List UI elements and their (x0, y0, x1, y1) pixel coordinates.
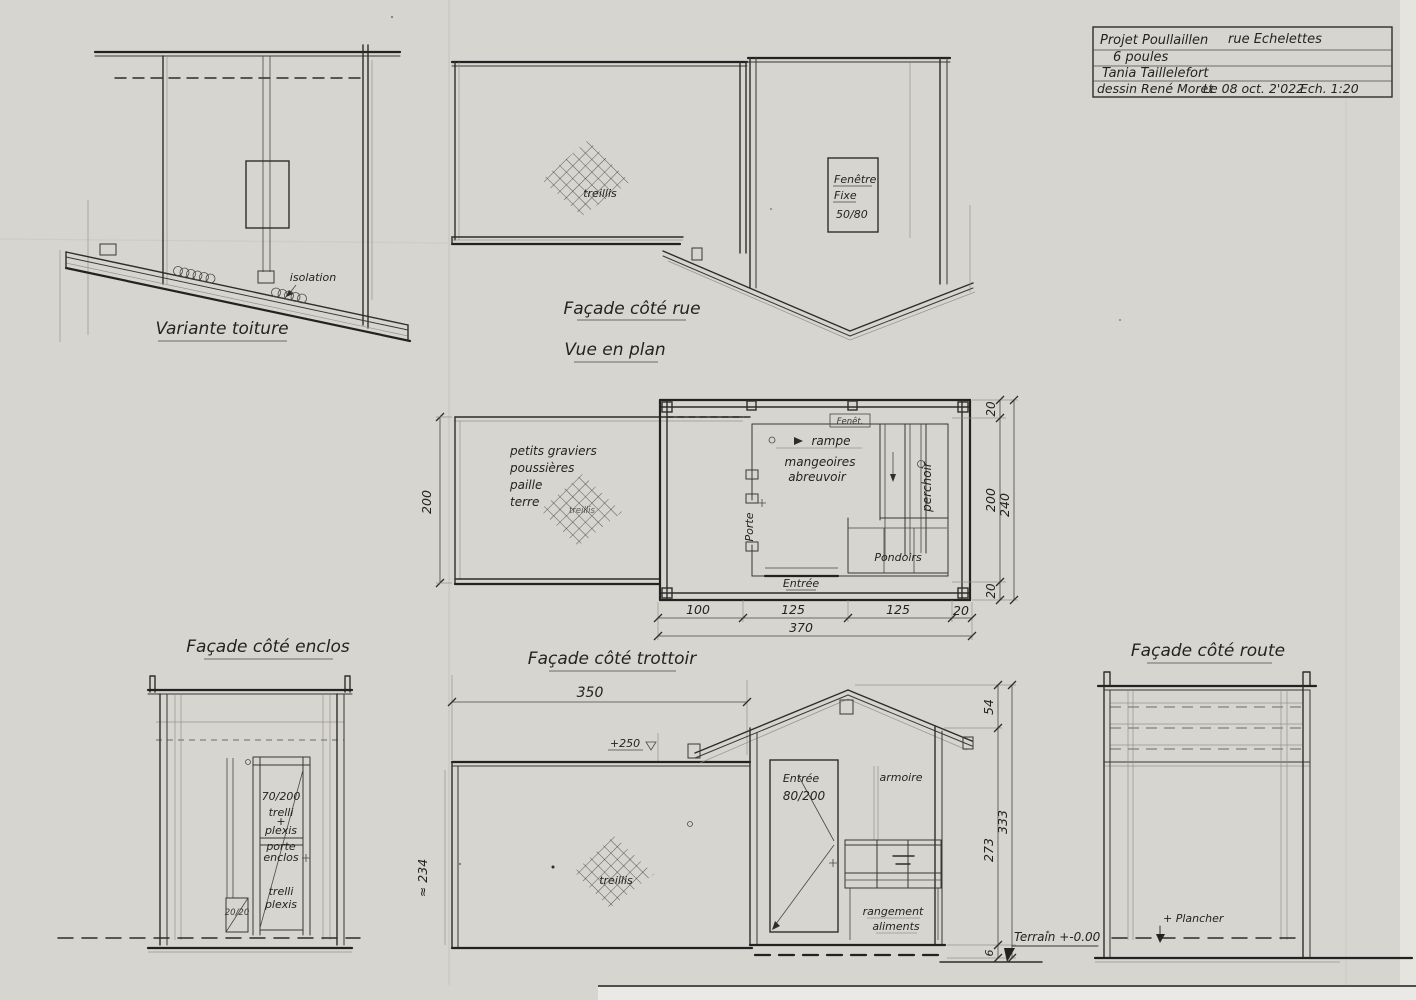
rangement-label: rangement (863, 905, 924, 918)
isolation-label: isolation (290, 271, 336, 284)
gable-dim-333: 333 (995, 810, 1010, 834)
scanned-drawing-sheet: Projet Poullaillen rue Echelettes 6 poul… (0, 0, 1416, 1000)
post-2020-label: 20/20 (225, 908, 250, 918)
caption-facade-trottoir: Façade côté trottoir (528, 649, 697, 669)
treillis-label-plan: treillis (569, 506, 596, 516)
treillis-label-trottoir: treillis (599, 874, 633, 887)
fenet-label: Fenêt. (837, 416, 864, 427)
caption-vue-en-plan: Vue en plan (564, 340, 665, 360)
plan-dim-100: 100 (686, 602, 710, 617)
caption-facade-route: Façade côté route (1131, 641, 1285, 661)
gable-dim-54: 54 (981, 699, 996, 715)
caption-facade-enclos: Façade côté enclos (186, 637, 350, 657)
plan-dim-125a: 125 (781, 602, 805, 617)
plan-dim-125b: 125 (886, 602, 910, 617)
drawing-scale: Ech. 1:20 (1300, 81, 1359, 96)
drawing-date: Le 08 oct. 2'022 (1203, 81, 1304, 96)
litiere-line4: terre (510, 495, 539, 509)
entree-label: Entrée (783, 772, 820, 785)
paper-background (0, 0, 1416, 1000)
plancher-label: + Plancher (1163, 912, 1225, 925)
rampe-label: rampe (812, 434, 851, 448)
client-name: Tania Taillelefort (1102, 66, 1209, 81)
plan-dim-right-20top: 20 (984, 401, 998, 417)
plan-entree-label: Entrée (783, 577, 820, 590)
scan-edge-bottom (598, 987, 1416, 1000)
plan-dim-20: 20 (953, 603, 969, 618)
project-location: rue Echelettes (1228, 32, 1322, 47)
plan-dim-right-20bottom: 20 (984, 583, 998, 599)
project-title: Projet Poullaillen (1100, 33, 1208, 48)
caption-facade-rue: Façade côté rue (563, 299, 700, 319)
litiere-line1: petits graviers (509, 444, 597, 458)
plan-dim-right-240: 240 (997, 493, 1012, 517)
perchoir-label: perchoir (920, 461, 934, 513)
enclos-door-enclos: enclos (263, 851, 299, 864)
scan-edge-right (1400, 0, 1416, 986)
litiere-line3: paille (509, 478, 542, 492)
enclos-door-plexis2: plexis (264, 898, 297, 911)
abreuvoir-label: abreuvoir (788, 470, 847, 484)
pondoirs-label: Pondoirs (874, 551, 922, 564)
trottoir-dim-350: 350 (577, 685, 604, 701)
enclos-door-plexis1: plexis (264, 824, 297, 837)
enclos-door-size: 70/200 (262, 790, 301, 803)
gable-dim-273: 273 (981, 838, 996, 862)
level-250-label: +250 (610, 737, 640, 750)
trottoir-dim-234: ≈ 234 (415, 859, 430, 897)
entree-size-label: 80/200 (783, 789, 826, 803)
fenetre-label-3: 50/80 (836, 208, 868, 221)
aliments-label: aliments (872, 920, 920, 933)
plan-dim-right-200: 200 (983, 488, 998, 512)
fenetre-label-1: Fenêtre (834, 173, 877, 186)
gable-dim-6: 6 (983, 950, 996, 957)
treillis-label-rue: treillis (583, 187, 617, 200)
terrain-label: Terrain +-0.00 (1014, 930, 1101, 944)
plan-dim-370: 370 (789, 620, 813, 635)
litiere-line2: poussières (509, 461, 574, 475)
mangeoires-label: mangeoires (785, 455, 856, 469)
caption-variante-toiture: Variante toiture (155, 319, 288, 339)
plan-dim-left-200: 200 (419, 490, 434, 514)
project-capacity: 6 poules (1113, 50, 1168, 65)
fenetre-label-2: Fixe (834, 189, 857, 202)
porte-label: Porte (743, 512, 756, 541)
author-name: dessin René Moret (1097, 81, 1214, 96)
armoire-label: armoire (879, 771, 922, 784)
enclos-door-trelli2: trelli (269, 885, 294, 898)
